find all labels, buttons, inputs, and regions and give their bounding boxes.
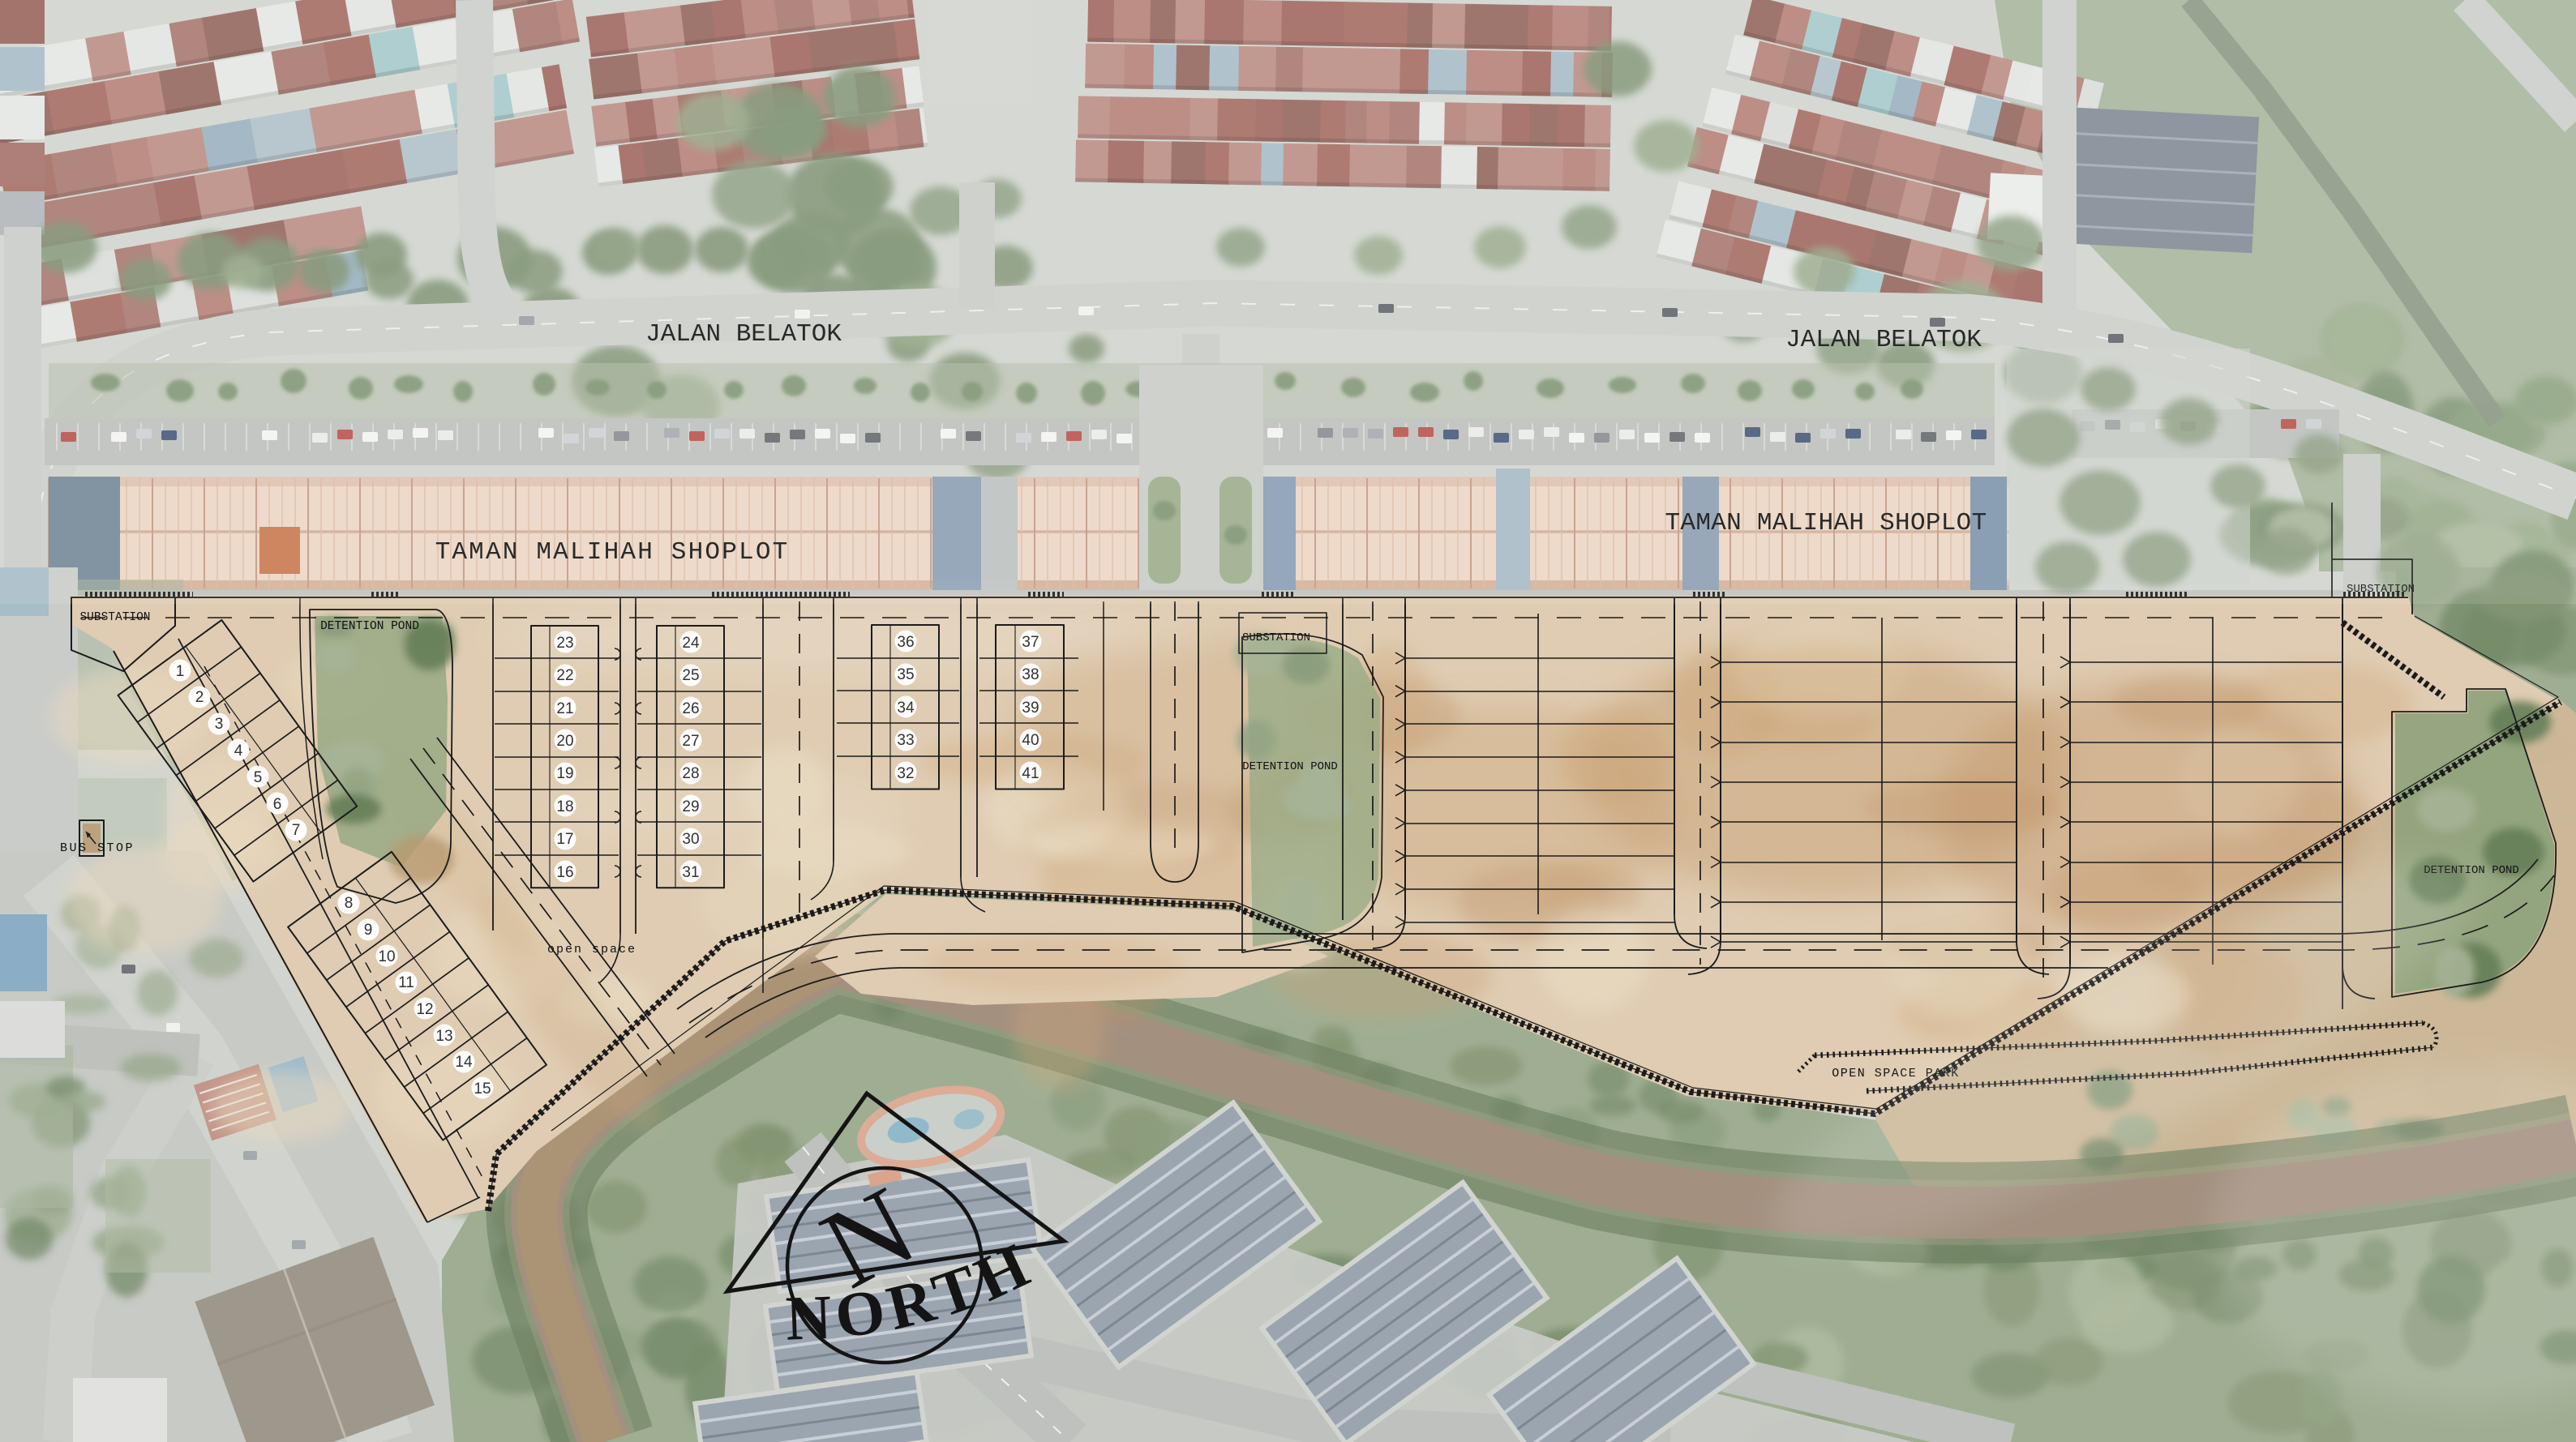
svg-text:SUBSTATION: SUBSTATION	[1242, 631, 1310, 644]
svg-text:39: 39	[1022, 700, 1039, 717]
svg-text:11: 11	[398, 974, 414, 991]
svg-text:5: 5	[254, 769, 263, 786]
svg-text:27: 27	[682, 733, 699, 750]
svg-text:9: 9	[364, 922, 373, 939]
svg-text:36: 36	[897, 634, 914, 651]
svg-text:13: 13	[435, 1028, 452, 1045]
svg-text:BUS STOP: BUS STOP	[60, 841, 135, 855]
svg-text:16: 16	[556, 864, 573, 881]
svg-text:33: 33	[897, 732, 914, 749]
svg-text:4: 4	[234, 742, 243, 760]
svg-text:25: 25	[682, 667, 699, 684]
svg-text:38: 38	[1022, 666, 1039, 683]
svg-text:32: 32	[897, 765, 914, 782]
svg-text:24: 24	[682, 635, 700, 652]
svg-text:31: 31	[682, 864, 699, 881]
svg-text:1: 1	[176, 663, 185, 680]
svg-text:26: 26	[682, 700, 699, 717]
svg-text:open space: open space	[547, 943, 636, 956]
svg-text:8: 8	[345, 895, 354, 912]
svg-text:30: 30	[682, 831, 699, 848]
svg-text:40: 40	[1022, 732, 1039, 749]
svg-text:SUBSTATION: SUBSTATION	[79, 611, 150, 624]
svg-text:DETENTION POND: DETENTION POND	[1242, 760, 1338, 773]
svg-text:6: 6	[273, 796, 282, 813]
svg-text:DETENTION POND: DETENTION POND	[320, 620, 419, 633]
svg-text:3: 3	[215, 716, 224, 733]
svg-text:15: 15	[474, 1080, 491, 1098]
svg-text:37: 37	[1022, 634, 1039, 651]
svg-text:19: 19	[556, 765, 573, 782]
svg-text:22: 22	[556, 667, 573, 684]
svg-text:41: 41	[1022, 765, 1039, 782]
svg-text:35: 35	[897, 666, 914, 683]
svg-text:23: 23	[556, 635, 573, 652]
svg-text:28: 28	[682, 765, 699, 782]
svg-text:34: 34	[897, 700, 915, 717]
svg-text:21: 21	[556, 700, 573, 717]
svg-text:7: 7	[292, 822, 301, 839]
svg-text:12: 12	[416, 1001, 433, 1018]
svg-text:20: 20	[556, 733, 573, 750]
svg-text:17: 17	[556, 831, 573, 848]
svg-text:29: 29	[682, 798, 699, 815]
svg-text:18: 18	[556, 798, 573, 815]
svg-text:10: 10	[378, 948, 395, 965]
svg-text:2: 2	[195, 689, 204, 706]
svg-text:14: 14	[455, 1054, 473, 1071]
